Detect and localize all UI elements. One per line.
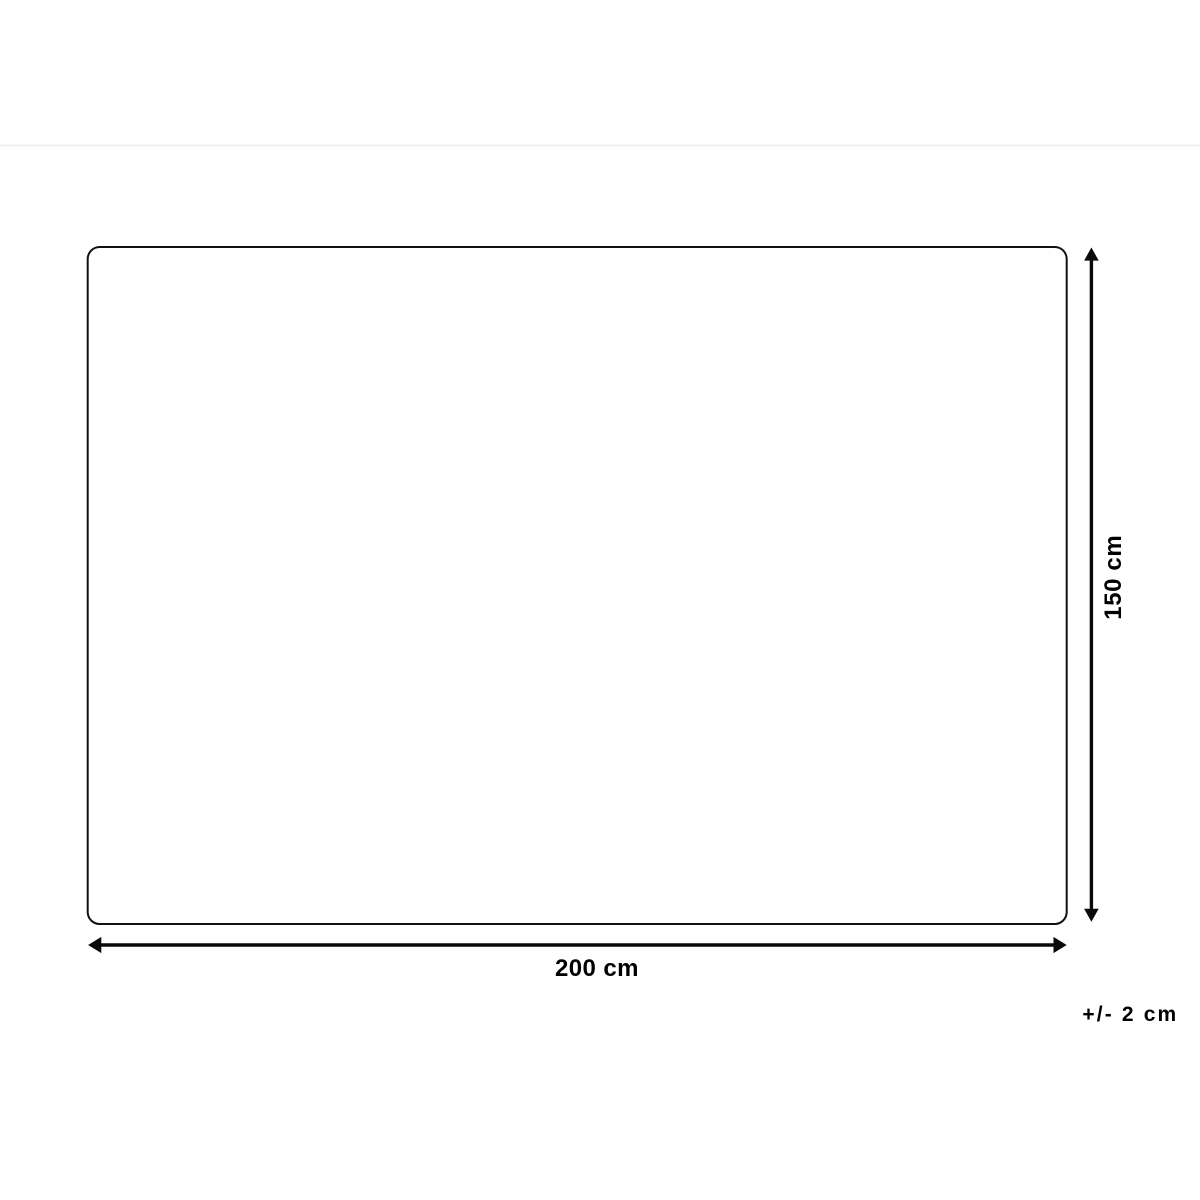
svg-text:200 cm: 200 cm <box>555 955 639 982</box>
svg-text:150 cm: 150 cm <box>1100 535 1127 620</box>
svg-text:+/- 2 cm: +/- 2 cm <box>1082 1003 1176 1026</box>
